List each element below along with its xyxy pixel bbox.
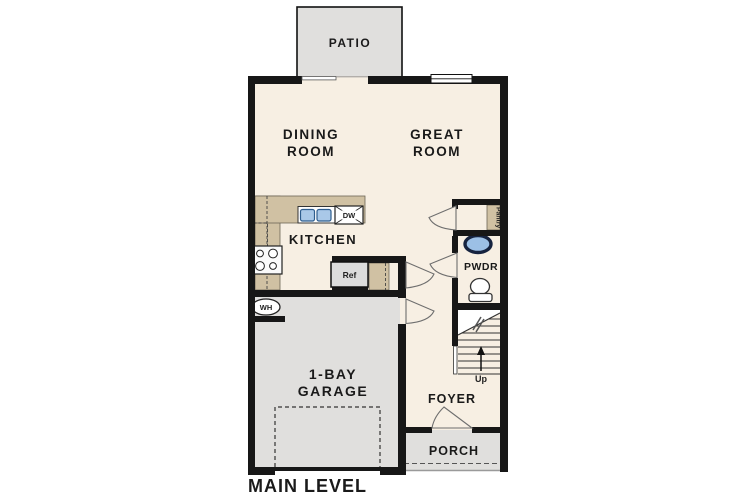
- level-title: MAIN LEVEL: [248, 476, 367, 496]
- hall-closet-shelf: [369, 263, 389, 290]
- wall-pantry-pwdr: [453, 230, 500, 236]
- wall-right: [500, 76, 508, 472]
- kitchen-sink: [298, 207, 335, 224]
- dining-room-label-1: DINING: [283, 127, 339, 142]
- wall-pantry-top: [453, 199, 500, 205]
- water-heater-label: WH: [260, 303, 273, 312]
- wall-pwdr-left-upper: [452, 236, 458, 253]
- great-room-label-2: ROOM: [413, 144, 461, 159]
- kitchen-label: KITCHEN: [289, 232, 357, 247]
- great-room-window: [431, 75, 472, 84]
- wall-stair-left: [452, 303, 458, 346]
- toilet: [469, 279, 492, 302]
- pantry-closet: Pantry: [487, 205, 502, 230]
- great-room-label-1: GREAT: [410, 127, 464, 142]
- pwdr-sink: [465, 236, 491, 253]
- floor-plan-canvas: PATIO DW: [0, 0, 750, 500]
- porch-label: PORCH: [429, 444, 479, 458]
- dishwasher-label: DW: [343, 211, 356, 220]
- dining-room-label-2: ROOM: [287, 144, 335, 159]
- wall-kitchen-garage: [248, 290, 406, 297]
- foyer-label: FOYER: [428, 392, 476, 406]
- patio-label: PATIO: [329, 36, 371, 50]
- patio-sliding-door-panel: [302, 77, 336, 80]
- wall-pwdr-bottom: [453, 303, 500, 310]
- dishwasher: DW: [335, 206, 363, 224]
- patio-area: PATIO: [297, 7, 402, 78]
- garage-door-sill: [275, 471, 380, 475]
- garage-label-2: GARAGE: [298, 383, 368, 399]
- garage-label-1: 1-BAY: [309, 366, 357, 382]
- wall-wh-stub: [248, 316, 285, 322]
- wall-hall-upper: [398, 256, 406, 298]
- stair-railing: [454, 346, 458, 374]
- wall-porch-top-left: [398, 427, 432, 433]
- stairs-up-label: Up: [475, 374, 487, 384]
- refrigerator: Ref: [331, 262, 368, 287]
- refrigerator-label: Ref: [343, 270, 357, 280]
- range-cooktop: [252, 246, 282, 274]
- wall-pwdr-left-lower: [452, 278, 458, 304]
- wall-left: [248, 76, 255, 475]
- wall-porch-top-right: [472, 427, 501, 433]
- pwdr-label: PWDR: [464, 261, 498, 273]
- wall-garage-hall: [398, 324, 406, 472]
- floor-plan-page: PATIO DW: [0, 0, 750, 500]
